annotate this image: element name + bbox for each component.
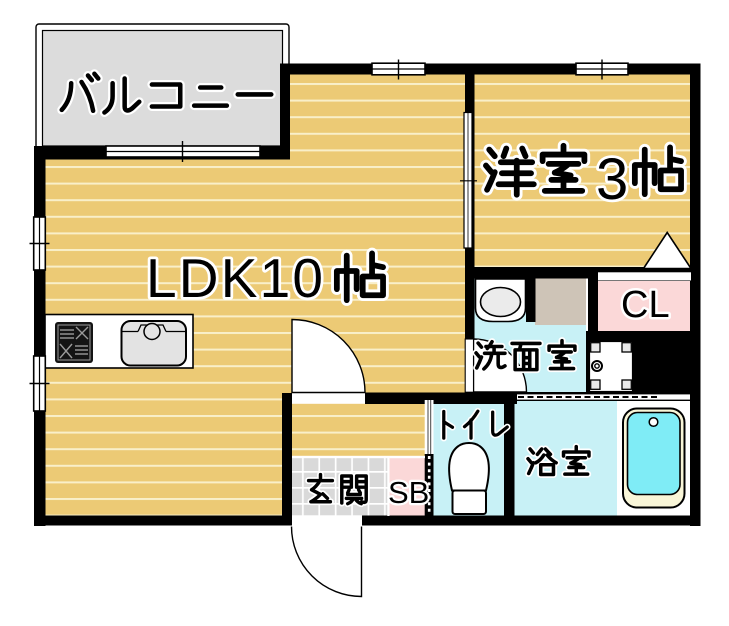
svg-text:SB: SB xyxy=(388,475,429,510)
svg-text:CL: CL xyxy=(621,284,670,326)
svg-text:3: 3 xyxy=(596,147,628,212)
svg-text:LDK10: LDK10 xyxy=(146,247,325,309)
